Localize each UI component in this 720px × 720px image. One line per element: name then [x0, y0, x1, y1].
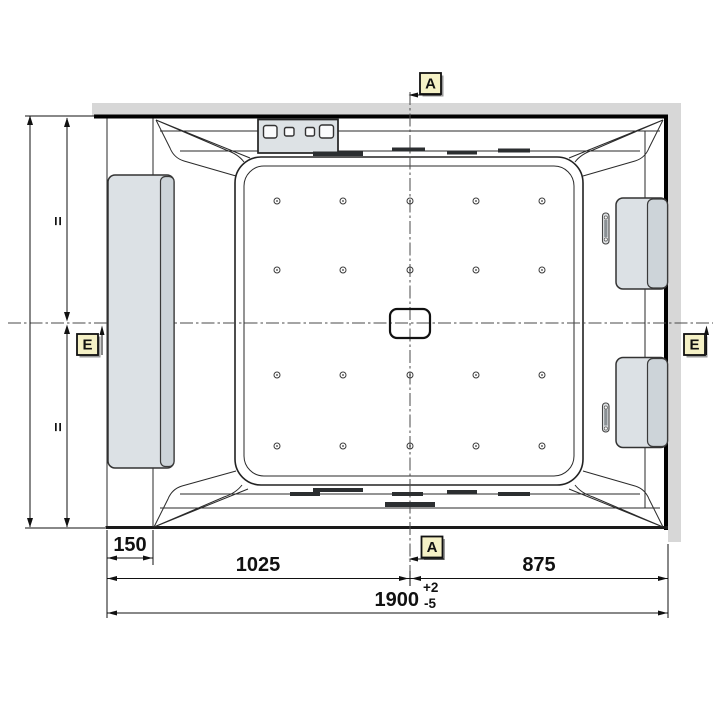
section-marker-a-bottom: A	[409, 537, 446, 562]
floor-jet	[473, 372, 479, 378]
panel-button	[264, 126, 278, 139]
tolerance-plus: +2	[423, 580, 438, 595]
basin	[235, 157, 583, 485]
floor-jet	[340, 198, 346, 204]
floor-jet	[473, 198, 479, 204]
dim-label-1900: 1900	[375, 589, 420, 611]
overflow-slot	[385, 502, 435, 507]
floor-jet	[274, 372, 280, 378]
floor-jet	[539, 267, 545, 273]
corner-slope-top-left	[156, 120, 250, 176]
headrest-left	[108, 175, 174, 468]
headrest-edge	[161, 177, 175, 467]
floor-jet	[274, 443, 280, 449]
grip-slot-upper	[603, 213, 610, 244]
corner-slope-top-right	[569, 120, 663, 176]
equality-mark: =	[49, 422, 66, 431]
rim-jet	[313, 488, 363, 492]
floor-jet	[539, 372, 545, 378]
grip-slot-lower	[603, 403, 610, 432]
wall-hatch-top	[92, 103, 681, 116]
dimension-150: 150	[107, 530, 153, 618]
grip-slot-groove	[604, 220, 607, 237]
floor-jet	[340, 443, 346, 449]
marker-letter: A	[427, 539, 438, 556]
grip-screw	[604, 238, 607, 241]
panel-button	[306, 128, 315, 137]
floor-jet	[274, 198, 280, 204]
section-arrow	[100, 326, 105, 336]
marker-letter: E	[82, 337, 92, 354]
rim-jet	[392, 148, 425, 152]
floor-jet	[340, 267, 346, 273]
basin-inner-edge	[244, 166, 574, 476]
dim-label-150: 150	[113, 534, 146, 556]
panel-button	[285, 128, 295, 137]
floor-jet	[473, 443, 479, 449]
section-marker-a-top: A	[409, 73, 444, 98]
grip-slot-groove	[604, 410, 607, 426]
tolerance-minus: -5	[424, 596, 436, 611]
grip-screw	[604, 216, 607, 219]
floor-jet	[539, 443, 545, 449]
section-arrow	[704, 326, 709, 336]
section-marker-e-right: E	[684, 326, 709, 358]
panel-mount-bar	[313, 152, 363, 157]
rim-jet	[498, 492, 530, 496]
headrest-right-lower	[616, 358, 668, 448]
rim-jet	[447, 151, 477, 155]
floor-jet	[473, 267, 479, 273]
rim-jet	[498, 149, 530, 153]
dim-label-875: 875	[522, 554, 555, 576]
floor-jet	[340, 372, 346, 378]
panel-button	[320, 125, 334, 138]
grip-screw	[604, 427, 607, 430]
rim-jet	[392, 492, 423, 496]
grip-screw	[604, 406, 607, 409]
headrest-right-upper	[616, 198, 668, 289]
marker-letter: E	[689, 337, 699, 354]
basin-outer-edge	[235, 157, 583, 485]
bathtub-drawing: = = 150 1025 875 1900 +2 -5 A	[0, 0, 720, 720]
corner-slope-bottom-left	[154, 471, 248, 527]
corner-slope-bottom-right	[569, 471, 663, 527]
headrest-edge	[648, 359, 668, 447]
dimension-height-outer	[25, 116, 105, 529]
rim-jet	[290, 492, 320, 496]
rim-jets-top	[392, 148, 530, 155]
marker-letter: A	[425, 76, 436, 93]
rim-jet	[447, 490, 477, 494]
dim-label-1025: 1025	[236, 554, 281, 576]
equality-mark: =	[49, 216, 66, 225]
dimension-1900-with-tolerance: 1900 +2 -5	[107, 544, 668, 618]
dimension-1025-875: 1025 875	[107, 554, 668, 586]
section-marker-e-left: E	[77, 326, 105, 358]
floor-jet	[274, 267, 280, 273]
technical-drawing-page: = = 150 1025 875 1900 +2 -5 A	[0, 0, 720, 720]
headrest-edge	[648, 199, 668, 288]
floor-jet	[539, 198, 545, 204]
